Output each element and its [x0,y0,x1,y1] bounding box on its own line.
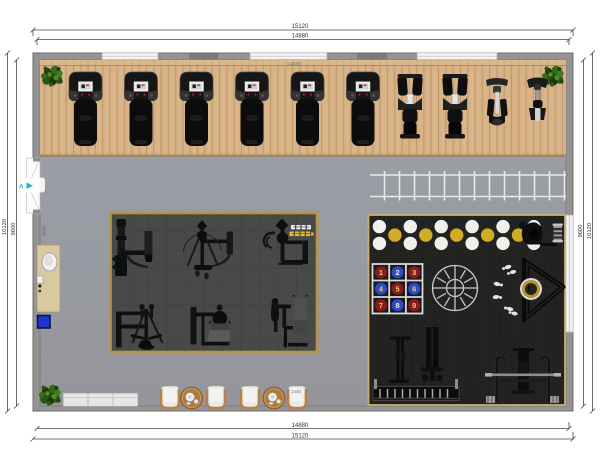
svg-text:9: 9 [412,301,416,310]
svg-text:1: 1 [379,268,383,277]
svg-text:9600: 9600 [11,223,17,236]
svg-text:9600: 9600 [578,225,584,238]
svg-text:3: 3 [412,268,416,277]
svg-text:14880: 14880 [287,62,302,68]
svg-text:7: 7 [379,301,383,310]
svg-text:10120: 10120 [587,223,593,239]
svg-text:0836: 0836 [42,225,47,236]
svg-text:A: A [19,184,24,191]
svg-text:10120: 10120 [2,219,8,235]
svg-text:15120: 15120 [292,24,309,30]
svg-text:15120: 15120 [292,434,309,440]
svg-text:2: 2 [396,268,400,277]
svg-text:14880: 14880 [292,34,309,40]
svg-text:1440: 1440 [291,389,302,394]
svg-text:14880: 14880 [292,423,309,429]
svg-text:5: 5 [396,285,400,294]
svg-text:8: 8 [396,301,400,310]
svg-text:6: 6 [412,285,416,294]
